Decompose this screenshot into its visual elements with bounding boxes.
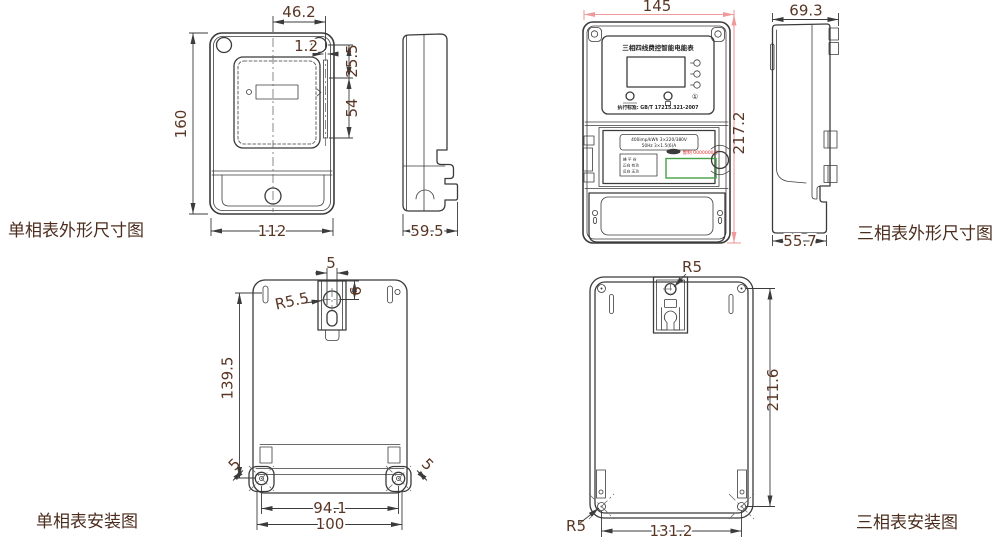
dim-hole-depth-6: 6 bbox=[341, 281, 366, 300]
vent-slot-left bbox=[610, 295, 614, 314]
single-phase-side-view: 59.5 bbox=[403, 34, 458, 240]
terminal-screw-left bbox=[592, 210, 597, 223]
single-phase-install-view: 5 6 R5.5 139.5 bbox=[219, 254, 438, 533]
meter-body-outline bbox=[210, 33, 334, 214]
caption-single-install: 单相表安装图 bbox=[36, 512, 138, 532]
meter-technical-drawing: 160 112 46.2 1.2 25.5 54 bbox=[0, 0, 1000, 548]
dim-bottom-depth-55-7: 55.7 bbox=[773, 232, 827, 250]
corner-screw-top-right bbox=[738, 285, 746, 293]
caption-three-install: 三相表安装图 bbox=[856, 513, 958, 533]
hanger-bracket bbox=[318, 281, 346, 341]
key-button bbox=[664, 92, 672, 100]
dim-text-width: 145 bbox=[643, 0, 672, 15]
meter-body-inner-line bbox=[587, 26, 726, 239]
lcd-display bbox=[627, 57, 685, 87]
dim-text-height: 217.2 bbox=[730, 112, 748, 155]
dim-text-width: 112 bbox=[258, 222, 287, 240]
mount-body-outline bbox=[590, 277, 753, 518]
barcode-area bbox=[666, 159, 716, 179]
dim-width-112: 112 bbox=[211, 218, 333, 240]
dim-strip-width-1-2: 1.2 bbox=[294, 37, 338, 55]
spec-line1: 400imp/kWh 3×220/380V bbox=[631, 137, 687, 143]
dim-text-width: 100 bbox=[316, 515, 345, 533]
dim-radius-bottom-r5: R5 bbox=[566, 508, 599, 535]
cover-curve bbox=[777, 30, 807, 183]
dim-depth-59-5: 59.5 bbox=[403, 202, 458, 240]
lcd-display bbox=[256, 85, 298, 99]
dim-text-depth: 59.5 bbox=[410, 222, 443, 240]
side-buttons bbox=[691, 60, 701, 88]
caption-three-outline: 三相表外形尺寸图 bbox=[857, 224, 993, 244]
top-right-hole bbox=[395, 289, 400, 294]
keyhole-shape bbox=[662, 311, 679, 330]
three-phase-install-view: R5 R5 211.6 131.2 bbox=[566, 258, 782, 540]
meter-body-inner-line bbox=[214, 37, 331, 211]
display-button bbox=[626, 92, 634, 100]
power-symbol: ① bbox=[692, 93, 698, 101]
three-phase-front-view: 三相四线费控智能电能表 ① 执行标准: GB/T 17215.321-2007 … bbox=[583, 0, 748, 243]
indicator-led bbox=[247, 90, 252, 95]
mount-body-inner bbox=[595, 282, 748, 513]
meter-body-outline bbox=[583, 22, 730, 243]
vent-slot-right bbox=[729, 295, 733, 314]
dim-height-211-6: 211.6 bbox=[746, 289, 782, 507]
terminal-slot-right bbox=[388, 447, 400, 463]
dim-text-hole-radius: R5.5 bbox=[273, 289, 310, 314]
bottom-clip-right bbox=[738, 470, 747, 498]
rate-row-1: 峰 平 谷 bbox=[623, 157, 637, 162]
corner-screw-top-left bbox=[598, 285, 606, 293]
display-window-seal bbox=[238, 61, 316, 144]
dim-text-width: 131.2 bbox=[650, 522, 693, 540]
dim-text-radius-top: R5 bbox=[682, 258, 702, 276]
top-left-hook bbox=[589, 28, 602, 42]
three-phase-side-view: 69.3 55.7 bbox=[771, 2, 839, 251]
hanger-cap bbox=[665, 300, 677, 308]
single-phase-front-view: 160 112 46.2 1.2 25.5 54 bbox=[172, 3, 361, 240]
side-cover-bump bbox=[416, 190, 434, 199]
dim-text-radius-bottom: R5 bbox=[566, 517, 586, 535]
rate-row-2: 正向 有功 bbox=[623, 163, 639, 168]
display-window bbox=[234, 57, 320, 148]
rate-row-3: 反向 无功 bbox=[623, 169, 639, 174]
dim-width-145: 145 bbox=[584, 0, 734, 20]
dim-text-strip-width: 1.2 bbox=[294, 37, 318, 55]
dim-text-height: 160 bbox=[172, 110, 190, 139]
hanger-tab bbox=[326, 330, 340, 341]
dim-width-131-2: 131.2 bbox=[602, 511, 742, 540]
standard-text: 执行标准: GB/T 17215.321-2007 bbox=[618, 104, 699, 111]
drawing-canvas: 160 112 46.2 1.2 25.5 54 bbox=[0, 0, 1000, 548]
caption-single-outline: 单相表外形尺寸图 bbox=[8, 221, 144, 241]
dim-height-139-5: 139.5 bbox=[219, 293, 263, 478]
captions: 单相表外形尺寸图 三相表外形尺寸图 单相表安装图 三相表安装图 bbox=[8, 221, 993, 533]
terminal-screw-right bbox=[717, 210, 722, 223]
dim-text-ear-right: 5 bbox=[418, 455, 437, 474]
dim-height-160: 160 bbox=[172, 33, 208, 214]
dim-text-upper-offset: 25.5 bbox=[343, 44, 361, 77]
dim-ear-left-5: 5 bbox=[225, 455, 244, 481]
dim-ear-right-5: 5 bbox=[417, 455, 437, 481]
top-left-screw bbox=[217, 38, 232, 53]
dim-text-height: 139.5 bbox=[219, 357, 237, 400]
bottom-hook bbox=[812, 186, 820, 199]
dim-top-depth-69-3: 69.3 bbox=[773, 2, 839, 27]
logo-mark bbox=[667, 149, 681, 155]
top-left-slot bbox=[263, 286, 268, 303]
spec-line2: 50Hz 3×1.5(6)A bbox=[642, 143, 677, 149]
panel-buttons: ① bbox=[623, 92, 698, 106]
hanger-bracket bbox=[654, 277, 688, 333]
hanging-slot bbox=[327, 311, 337, 327]
dim-text-bottom-depth: 55.7 bbox=[783, 232, 816, 250]
meter-title: 三相四线费控智能电能表 bbox=[622, 43, 694, 52]
dim-text-hole-depth: 6 bbox=[347, 286, 365, 296]
bottom-clip-left bbox=[597, 470, 606, 498]
dim-text-height: 211.6 bbox=[764, 369, 782, 412]
dim-text-strip-length: 54 bbox=[343, 98, 361, 117]
terminal-slot-left bbox=[260, 447, 272, 463]
top-right-slot bbox=[388, 286, 393, 303]
side-profile-outline bbox=[403, 34, 458, 211]
dim-text-ear-left: 5 bbox=[225, 455, 244, 474]
terminal-cover-inner bbox=[601, 197, 713, 235]
dim-text-top-width: 46.2 bbox=[282, 3, 315, 21]
dim-text-top-depth: 69.3 bbox=[789, 2, 822, 20]
left-clips bbox=[584, 136, 595, 182]
dim-hole-span-94-1: 94.1 bbox=[262, 486, 399, 517]
side-profile-outline bbox=[773, 24, 831, 233]
dim-text-slot-width: 5 bbox=[326, 254, 336, 272]
dim-hole-radius-r5-5: R5.5 bbox=[273, 289, 322, 314]
dim-upper-offset-25-5: 25.5 bbox=[328, 44, 361, 78]
